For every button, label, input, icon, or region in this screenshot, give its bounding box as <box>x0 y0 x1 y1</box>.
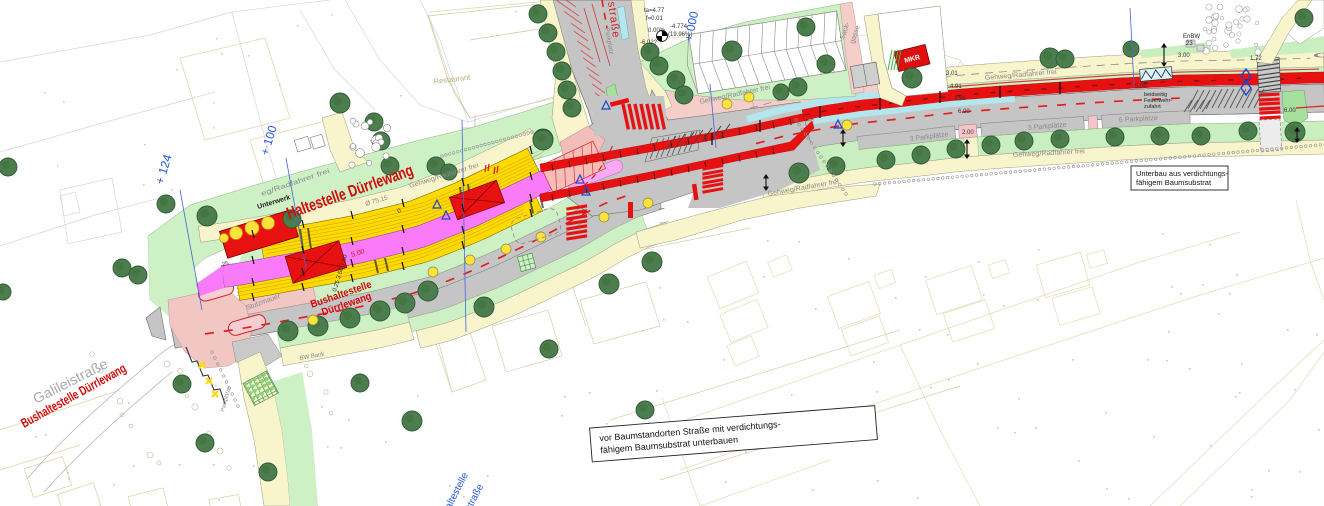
svg-text:3.01: 3.01 <box>946 71 958 77</box>
svg-text:1.72: 1.72 <box>1250 56 1262 62</box>
svg-text:6.00: 6.00 <box>1284 108 1296 114</box>
svg-text:23: 23 <box>1186 41 1193 47</box>
svg-text:3.00: 3.00 <box>1178 53 1190 59</box>
svg-text:-6.02?: -6.02? <box>640 40 658 46</box>
svg-text:(19.96%): (19.96%) <box>668 32 692 38</box>
svg-text:3.96: 3.96 <box>954 96 966 102</box>
svg-text:-4.774: -4.774 <box>670 24 688 30</box>
svg-text:zufahrt: zufahrt <box>1144 104 1161 110</box>
svg-text:f=0.01: f=0.01 <box>646 16 664 22</box>
svg-text:EnBW: EnBW <box>1183 34 1200 40</box>
svg-text:fähigem Baumsubstrat: fähigem Baumsubstrat <box>1136 178 1212 187</box>
svg-text:0.00%: 0.00% <box>648 28 666 34</box>
svg-text:5.00: 5.00 <box>1135 84 1147 90</box>
svg-text:ta=4.77: ta=4.77 <box>644 8 665 14</box>
svg-text:6.00: 6.00 <box>958 109 970 115</box>
svg-text:2.00: 2.00 <box>962 130 974 136</box>
svg-text:Unterbau aus verdichtungs-: Unterbau aus verdichtungs- <box>1136 169 1229 178</box>
svg-text:4.91: 4.91 <box>950 84 962 90</box>
